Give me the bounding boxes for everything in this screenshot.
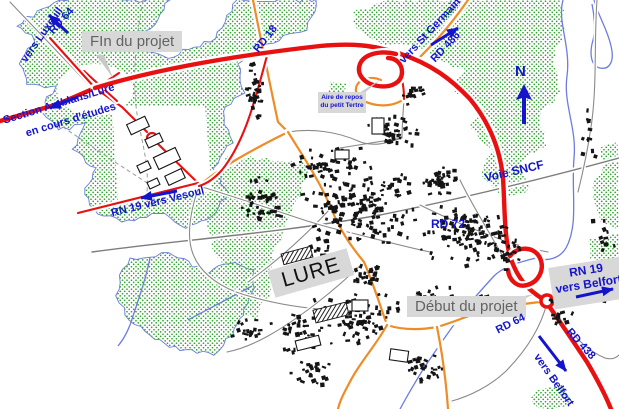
north-label: N [515, 64, 526, 81]
aire-de-repos-line1: Aire de repos [319, 94, 365, 102]
callout-fin-du-projet: FIn du projet [82, 31, 182, 52]
label-rd72: RD 72 [431, 218, 465, 231]
callout-debut-du-projet: Début du projet [407, 296, 526, 317]
map-canvas: RD 64 vers Luxeuil FIn du projet Section… [0, 0, 619, 409]
callout-aire-de-repos: Aire de repos du petit Tertre [318, 92, 366, 113]
map-base-layer [0, 0, 619, 409]
aire-de-repos-line2: du petit Tertre [319, 102, 365, 110]
